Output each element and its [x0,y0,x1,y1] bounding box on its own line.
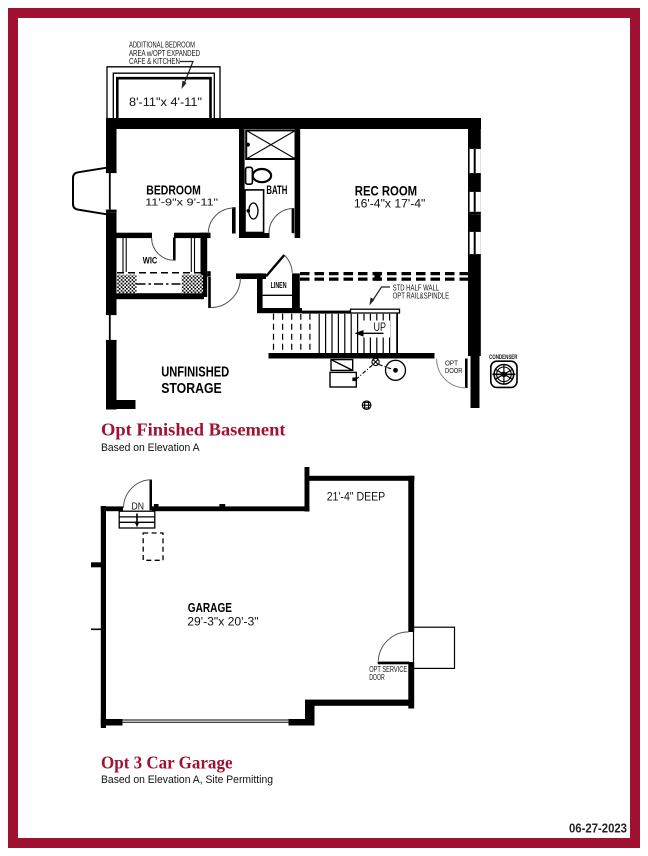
svg-text:UNFINISHED: UNFINISHED [161,364,229,380]
svg-text:GARAGE: GARAGE [188,600,232,615]
svg-text:UP: UP [374,320,387,334]
svg-text:21'-4" DEEP: 21'-4" DEEP [327,491,386,503]
svg-text:11'-9"x 9'-11": 11'-9"x 9'-11" [145,197,219,208]
svg-text:REC ROOM: REC ROOM [355,183,417,199]
svg-text:16'-4"x 17'-4": 16'-4"x 17'-4" [354,198,426,210]
svg-text:Based on Elevation A, Site Per: Based on Elevation A, Site Permitting [101,774,273,786]
svg-text:8'-11"x 4'-11": 8'-11"x 4'-11" [129,95,202,109]
svg-text:DOOR: DOOR [369,673,385,682]
svg-text:29'-3"x 20'-3": 29'-3"x 20'-3" [187,617,258,629]
svg-text:06-27-2023: 06-27-2023 [569,820,627,835]
svg-text:LINEN: LINEN [271,281,287,290]
svg-text:Based on Elevation A: Based on Elevation A [101,442,200,454]
svg-text:BATH: BATH [266,184,287,197]
svg-text:Opt Finished Basement: Opt Finished Basement [101,420,286,440]
svg-text:CONDENSER: CONDENSER [489,354,518,361]
svg-text:STORAGE: STORAGE [161,381,222,397]
svg-text:CAFE & KITCHEN: CAFE & KITCHEN [129,57,180,66]
svg-text:WIC: WIC [143,255,158,266]
svg-text:DOOR: DOOR [445,366,463,375]
svg-text:Opt 3 Car Garage: Opt 3 Car Garage [101,753,233,773]
svg-text:BEDROOM: BEDROOM [146,183,201,198]
svg-text:OPT RAIL&SPINDLE: OPT RAIL&SPINDLE [393,291,450,300]
